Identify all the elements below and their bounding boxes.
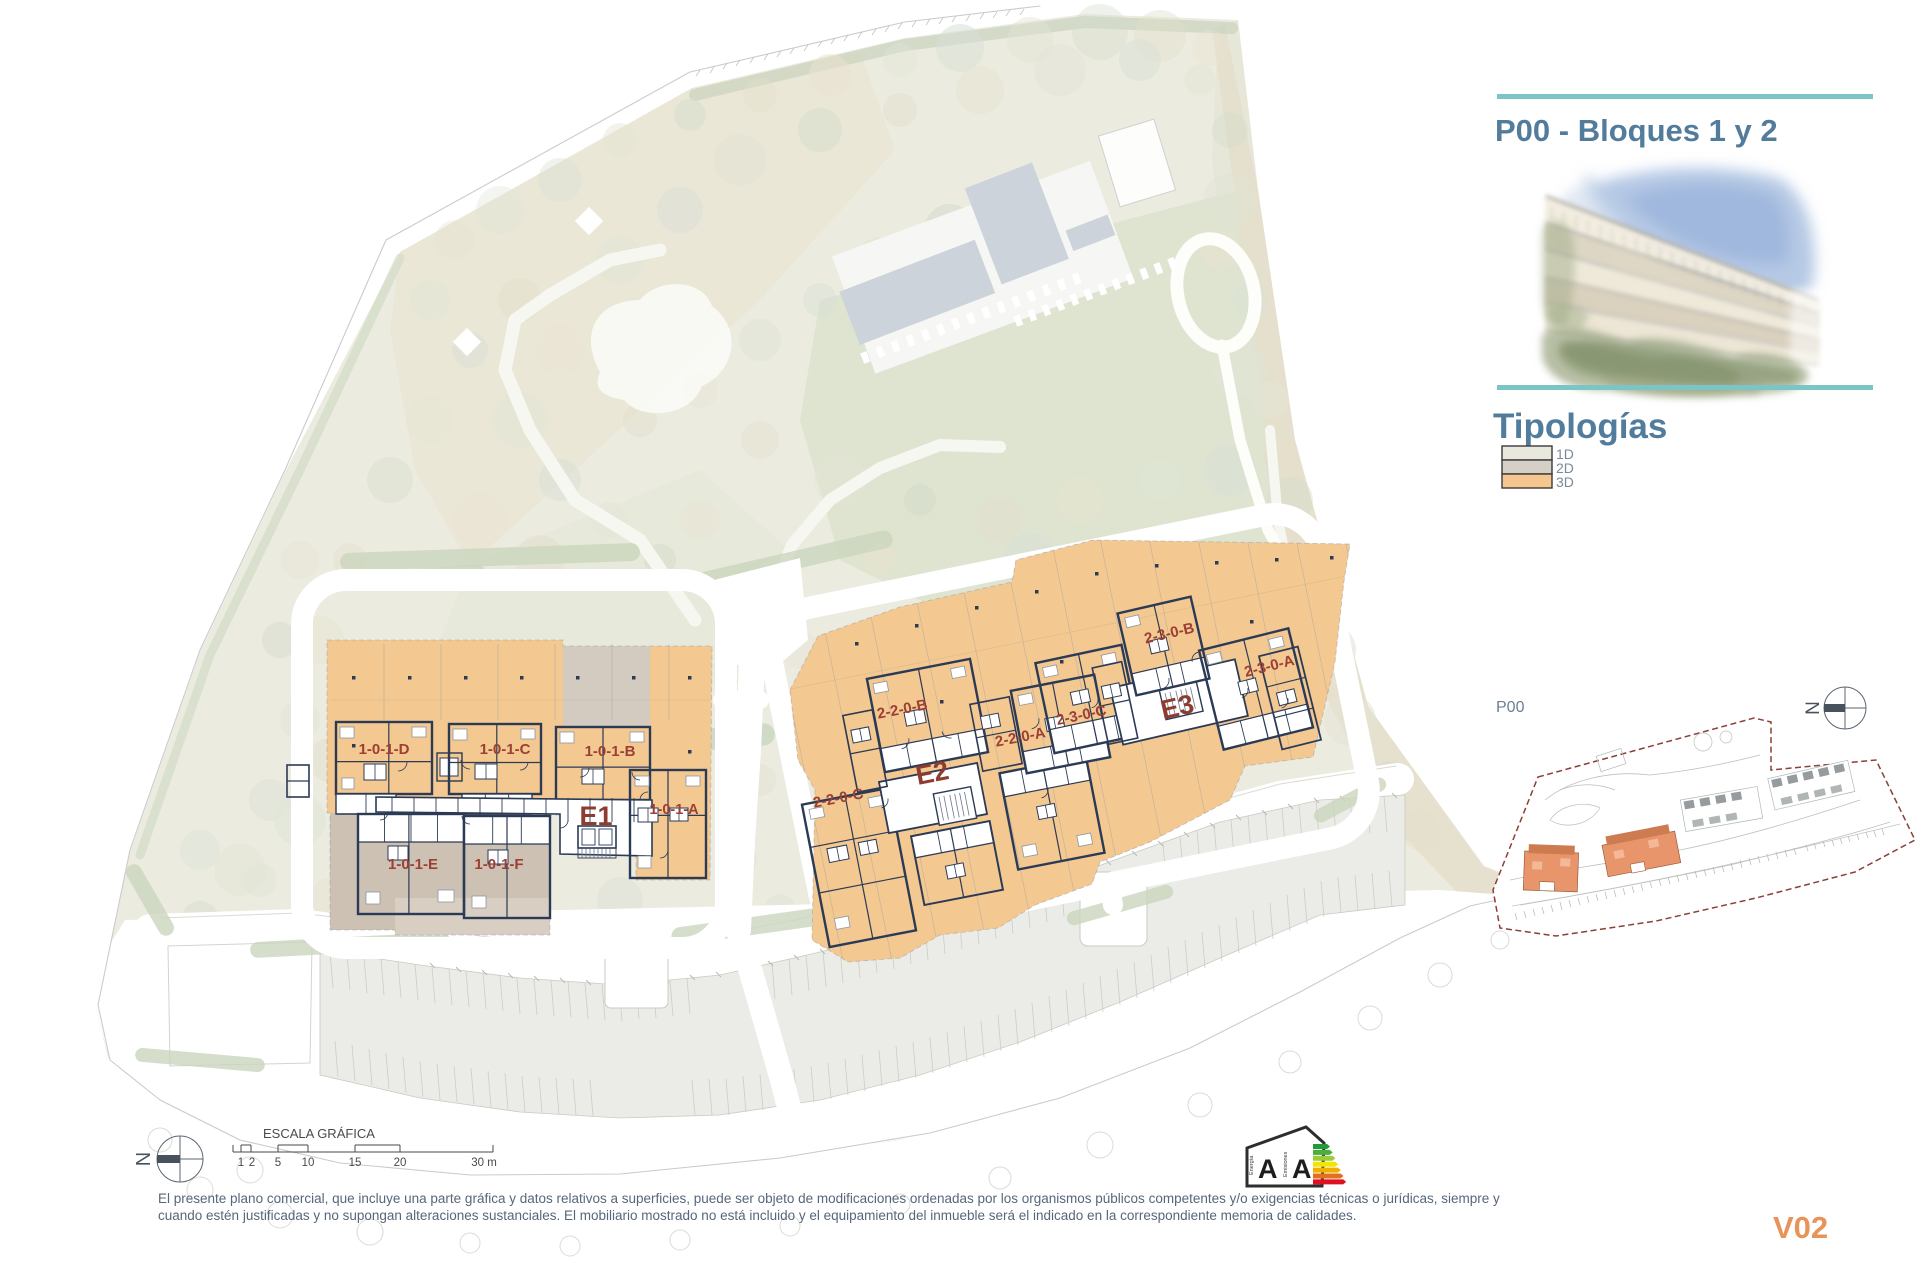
svg-text:P00: P00 [1496,699,1525,716]
svg-text:1-0-1-C: 1-0-1-C [480,741,531,758]
svg-text:E1: E1 [579,801,612,831]
svg-text:2: 2 [249,1157,255,1169]
svg-text:1-0-1-F: 1-0-1-F [474,856,523,873]
svg-text:1: 1 [238,1157,244,1169]
svg-text:Energía: Energía [1249,1155,1255,1175]
svg-text:Tipologías: Tipologías [1493,407,1667,446]
svg-text:P00 - Bloques 1 y 2: P00 - Bloques 1 y 2 [1495,113,1778,148]
svg-text:Emisiones: Emisiones [1283,1151,1289,1177]
svg-text:E2: E2 [913,755,951,791]
svg-text:A: A [1292,1154,1312,1184]
svg-text:1-0-1-D: 1-0-1-D [359,741,410,758]
svg-text:1-0-1-B: 1-0-1-B [585,743,636,760]
svg-text:20: 20 [394,1157,407,1169]
svg-text:3D: 3D [1556,474,1574,490]
svg-text:1-0-1-A: 1-0-1-A [649,802,699,818]
svg-text:A: A [1258,1154,1278,1184]
svg-text:ESCALA GRÁFICA: ESCALA GRÁFICA [263,1126,375,1141]
svg-text:N: N [1803,701,1824,715]
svg-text:El presente plano comercial, q: El presente plano comercial, que incluye… [158,1191,1500,1206]
svg-text:5: 5 [275,1157,281,1169]
svg-text:1-0-1-E: 1-0-1-E [388,856,438,873]
svg-text:N: N [133,1152,155,1166]
svg-text:30 m: 30 m [471,1157,497,1169]
svg-text:15: 15 [349,1157,362,1169]
svg-text:V02: V02 [1773,1210,1828,1245]
svg-text:cuando estén justificadas y no: cuando estén justificadas y no supongan … [158,1208,1356,1223]
svg-text:10: 10 [302,1157,315,1169]
